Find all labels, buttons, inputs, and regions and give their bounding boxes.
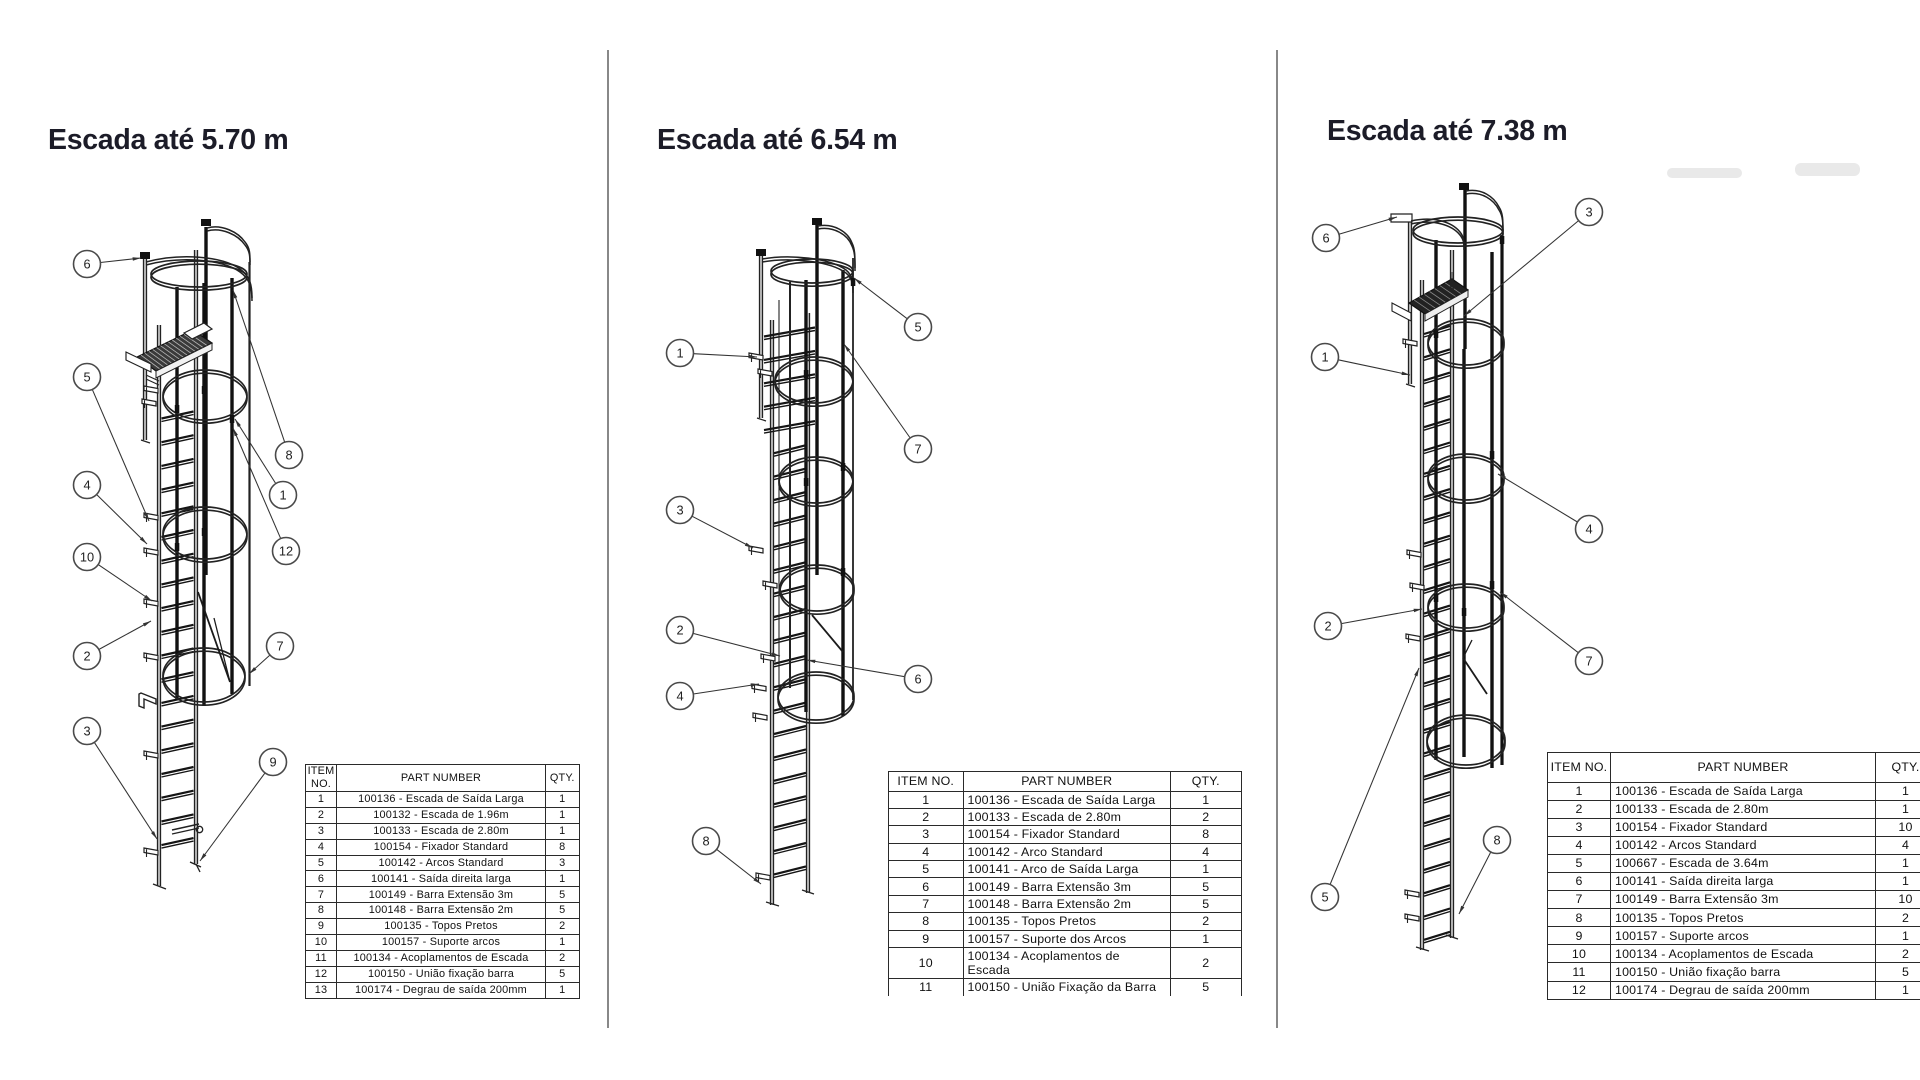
svg-text:10: 10	[80, 550, 94, 565]
svg-text:5: 5	[914, 320, 921, 335]
svg-text:8: 8	[702, 834, 709, 849]
svg-text:4: 4	[676, 689, 683, 704]
svg-text:6: 6	[83, 257, 90, 272]
svg-text:5: 5	[83, 370, 90, 385]
svg-text:4: 4	[1585, 522, 1592, 537]
svg-text:3: 3	[83, 724, 90, 739]
svg-text:4: 4	[83, 478, 90, 493]
svg-text:7: 7	[1585, 654, 1592, 669]
svg-text:3: 3	[1585, 205, 1592, 220]
svg-text:1: 1	[279, 488, 286, 503]
svg-text:12: 12	[279, 544, 293, 559]
svg-text:2: 2	[676, 623, 683, 638]
svg-text:2: 2	[83, 649, 90, 664]
svg-text:6: 6	[914, 672, 921, 687]
svg-text:7: 7	[276, 639, 283, 654]
svg-text:2: 2	[1324, 619, 1331, 634]
svg-text:1: 1	[1321, 350, 1328, 365]
svg-text:3: 3	[676, 503, 683, 518]
svg-text:7: 7	[914, 442, 921, 457]
svg-text:8: 8	[1493, 833, 1500, 848]
svg-text:5: 5	[1321, 890, 1328, 905]
svg-text:1: 1	[676, 346, 683, 361]
svg-text:6: 6	[1322, 231, 1329, 246]
svg-text:8: 8	[285, 448, 292, 463]
svg-text:9: 9	[269, 755, 276, 770]
